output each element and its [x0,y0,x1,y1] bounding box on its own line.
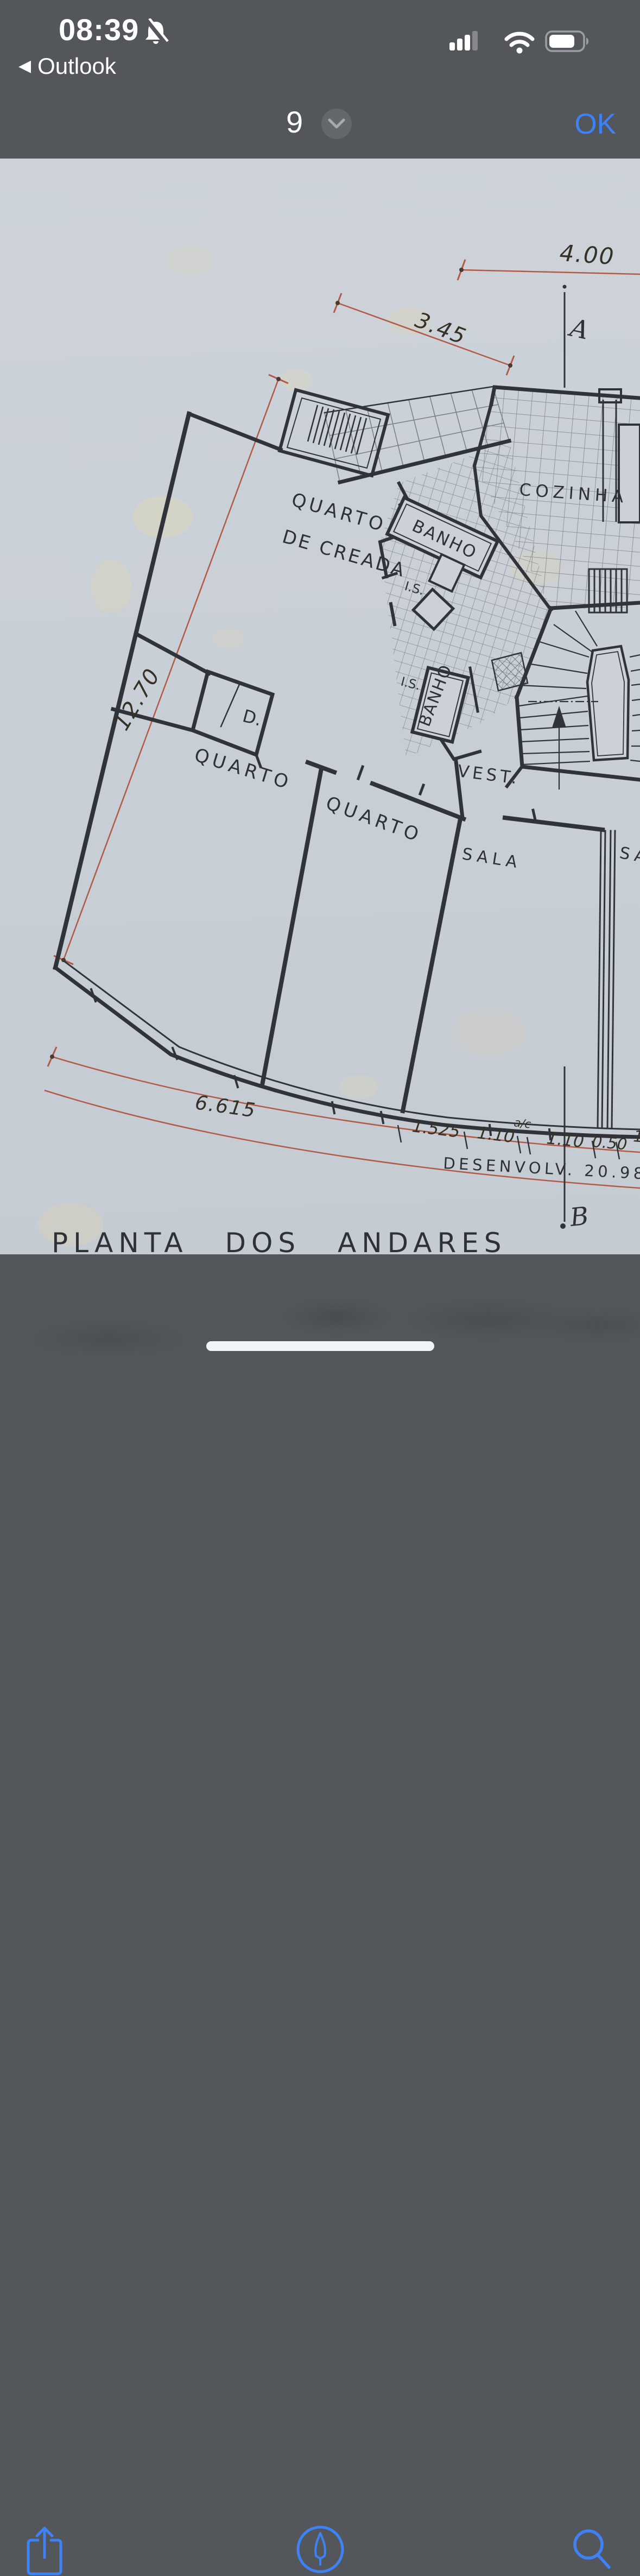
status-icons [449,30,601,59]
page-picker-button[interactable] [321,109,352,139]
sheet-title: PLANTA DOS ANDARES [52,1227,507,1254]
page-number: 9 [286,104,303,140]
axis-marker-top: A [566,312,592,345]
dim-left: 12.70 [109,664,166,735]
share-icon [28,2528,61,2574]
dim-diagonal: 3.45 [411,307,470,350]
axis-marker-bottom: B [568,1201,590,1232]
clock: 08:39 [59,12,139,47]
search-icon [575,2531,609,2567]
wifi-icon [506,34,533,53]
ok-button[interactable]: OK [574,108,616,141]
share-button[interactable] [26,2526,63,2576]
dim-development: DESENVOLV. 20.98 [443,1154,640,1183]
home-indicator[interactable] [206,1341,434,1351]
dim-top: 4.00 [559,239,616,270]
markup-button[interactable] [295,2524,345,2574]
bell-slash-icon [142,18,169,46]
battery-icon [546,31,588,51]
room-label-living1: SALA [461,844,523,873]
search-button[interactable] [571,2528,613,2573]
floorplan-drawing: A B QUARTO DE CREADA BANHO I.S. COZINHA … [0,159,640,1254]
dim-arc-seg1: 1.525 [411,1116,461,1142]
room-label-bedroom2: QUARTO [323,792,425,847]
dim-bottom: 6.615 [194,1091,258,1122]
markup-icon [298,2527,343,2572]
room-label-closet: D. [240,705,264,730]
dim-arc-seg4: 0.50 [591,1132,628,1153]
dim-arc-seg5: 1 [632,1127,640,1146]
bottom-toolbar [0,1254,640,1388]
chevron-down-icon [327,118,346,130]
status-and-nav-bar: 08:39 ◀ Outlook 9 OK [0,0,640,159]
dim-arc-seg2: 1.10 [476,1123,516,1147]
dim-arc-seg3: 1.10 [546,1128,585,1152]
room-label-maid-1: QUARTO [289,489,389,536]
room-label-living2: SA [618,843,640,867]
back-label: Outlook [37,53,116,79]
back-chevron-icon: ◀ [18,53,31,79]
floorplan-document-view[interactable]: A B QUARTO DE CREADA BANHO I.S. COZINHA … [0,159,640,1254]
room-label-vestibule: VEST. [457,761,521,788]
signal-icon [449,31,478,50]
back-to-outlook-button[interactable]: ◀ Outlook [18,53,116,79]
dim-arc-note: a/c [513,1116,532,1131]
